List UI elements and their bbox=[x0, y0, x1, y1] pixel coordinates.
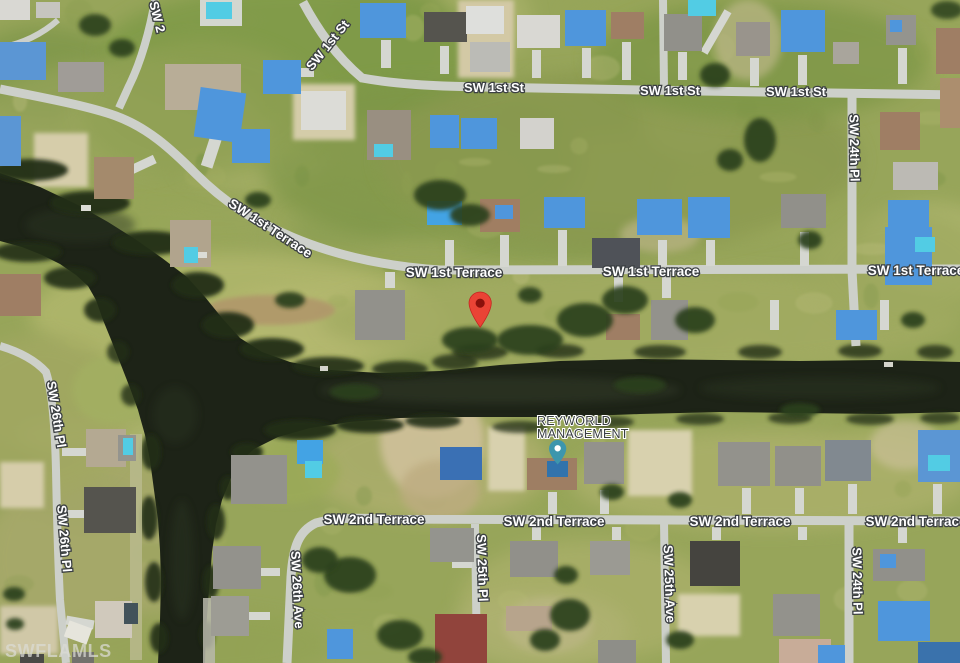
svg-text:SW 1st St: SW 1st St bbox=[640, 83, 701, 98]
svg-text:SW 1st Terrace: SW 1st Terrace bbox=[603, 264, 700, 279]
svg-text:SW 2nd Terrace: SW 2nd Terrace bbox=[865, 514, 960, 529]
svg-text:SW 25th Pl: SW 25th Pl bbox=[474, 534, 491, 602]
svg-text:SW 1st St: SW 1st St bbox=[464, 80, 525, 95]
svg-text:SWFLAMLS: SWFLAMLS bbox=[5, 641, 112, 661]
svg-text:SW 24th Pl: SW 24th Pl bbox=[846, 114, 862, 181]
svg-text:SW 2nd Terrace: SW 2nd Terrace bbox=[503, 514, 605, 529]
svg-text:SW 1st Terrace: SW 1st Terrace bbox=[868, 263, 960, 278]
svg-text:SW 24th Pl: SW 24th Pl bbox=[849, 547, 865, 614]
svg-text:SW 2nd Terrace: SW 2nd Terrace bbox=[689, 514, 791, 529]
svg-text:SW 1st Terrace: SW 1st Terrace bbox=[406, 265, 503, 280]
svg-text:SW 2nd Terrace: SW 2nd Terrace bbox=[323, 512, 425, 527]
svg-text:REYWORLD: REYWORLD bbox=[537, 414, 611, 428]
svg-text:MANAGEMENT: MANAGEMENT bbox=[537, 427, 629, 441]
svg-text:SW 1st St: SW 1st St bbox=[766, 84, 827, 99]
svg-text:SW 25th Ave: SW 25th Ave bbox=[661, 545, 679, 623]
